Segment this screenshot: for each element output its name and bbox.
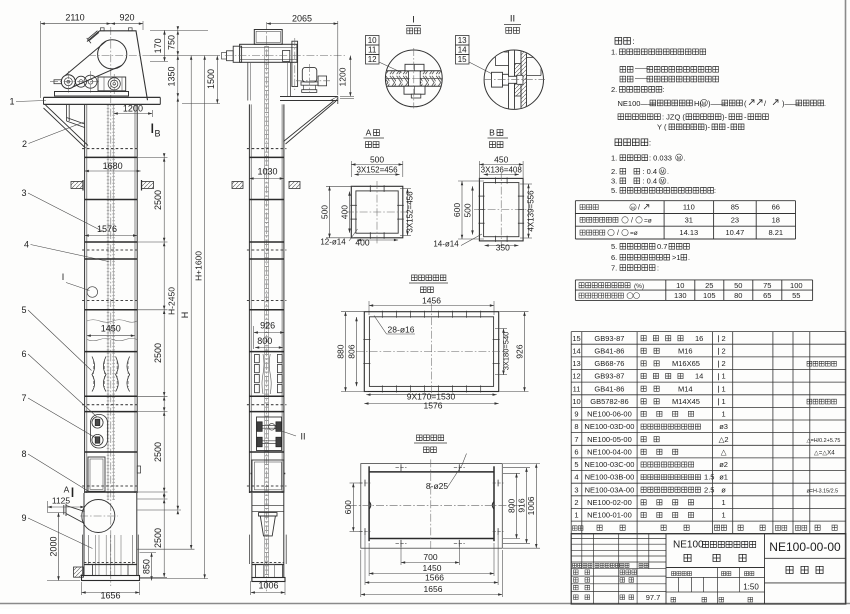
svg-text:18: 18 [772, 215, 780, 224]
svg-text:1: 1 [722, 511, 726, 520]
svg-text:7.: 7. [611, 263, 617, 272]
svg-text:I: I [62, 272, 65, 282]
svg-text:10: 10 [676, 281, 684, 290]
svg-text:/: / [638, 205, 640, 212]
svg-text::: : [663, 87, 665, 94]
svg-text:NE100-00-00: NE100-00-00 [769, 540, 841, 554]
svg-text:850: 850 [141, 559, 151, 574]
svg-text:/: / [617, 230, 619, 237]
svg-text:: 0.4: : 0.4 [643, 167, 658, 176]
svg-text:.: . [688, 255, 690, 262]
svg-text:II: II [301, 432, 306, 442]
svg-text:600: 600 [343, 500, 353, 514]
svg-text:6: 6 [574, 447, 578, 456]
svg-text:12-ø14: 12-ø14 [320, 238, 346, 247]
svg-text::: : [714, 188, 716, 195]
svg-text:1030: 1030 [257, 167, 277, 177]
svg-text:11: 11 [368, 46, 377, 55]
svg-text:1: 1 [722, 498, 726, 507]
svg-text:GB93-87: GB93-87 [594, 372, 624, 381]
svg-text:1: 1 [9, 97, 14, 107]
svg-text:100: 100 [790, 281, 803, 290]
svg-text:)-: )- [722, 113, 727, 122]
svg-text:600: 600 [452, 203, 462, 217]
svg-text:Y (: Y ( [657, 123, 667, 132]
svg-text:6.: 6. [611, 253, 617, 262]
svg-text:2065: 2065 [292, 13, 312, 23]
svg-text:916: 916 [516, 498, 526, 512]
svg-text:B: B [154, 129, 160, 139]
svg-text:: 0.4: : 0.4 [643, 177, 658, 186]
svg-text:M: M [631, 205, 635, 210]
svg-text:1576: 1576 [97, 224, 117, 234]
svg-text:920: 920 [119, 13, 134, 23]
svg-text:2500: 2500 [153, 190, 163, 210]
svg-text:1200: 1200 [123, 103, 143, 113]
svg-text:5: 5 [21, 305, 26, 315]
svg-text:GB93-87: GB93-87 [594, 334, 624, 343]
svg-text:65: 65 [763, 291, 771, 300]
svg-text:.: . [667, 179, 669, 186]
svg-text:2: 2 [722, 359, 726, 368]
svg-text:A: A [366, 128, 372, 138]
svg-text:500: 500 [370, 154, 384, 164]
svg-text:1:50: 1:50 [743, 583, 759, 592]
svg-text:2500: 2500 [153, 343, 163, 363]
svg-text:1500: 1500 [206, 69, 216, 89]
svg-text:II: II [510, 14, 515, 25]
svg-text:.: . [824, 101, 826, 108]
svg-text:8: 8 [574, 422, 578, 431]
svg-text:)-: )- [705, 123, 710, 132]
svg-text:3X152=456: 3X152=456 [356, 165, 398, 174]
svg-text:1.: 1. [611, 154, 617, 163]
svg-text:14: 14 [458, 46, 467, 55]
svg-text:△=△X4: △=△X4 [814, 449, 835, 456]
svg-text:3.: 3. [611, 177, 617, 186]
svg-text:80: 80 [734, 291, 742, 300]
svg-text:NE100-01-00: NE100-01-00 [587, 511, 632, 520]
svg-text:800: 800 [506, 499, 516, 513]
svg-text:3X152=456: 3X152=456 [406, 191, 415, 233]
svg-text::: : [649, 139, 651, 148]
svg-text:31: 31 [685, 215, 693, 224]
svg-text:9: 9 [21, 513, 26, 523]
svg-text:1: 1 [722, 397, 726, 406]
svg-text:1450: 1450 [101, 324, 121, 334]
svg-text:M: M [660, 179, 664, 185]
svg-text:.: . [667, 169, 669, 176]
svg-text:1656: 1656 [100, 591, 120, 601]
svg-text:9: 9 [574, 410, 578, 419]
svg-text:M: M [677, 156, 681, 162]
svg-text:GB5782-86: GB5782-86 [590, 397, 628, 406]
svg-text:806: 806 [346, 344, 356, 358]
svg-text:△2: △2 [719, 435, 729, 444]
svg-text:(%): (%) [634, 283, 644, 290]
svg-text:H-2450: H-2450 [167, 287, 177, 315]
svg-text:170: 170 [153, 38, 163, 53]
svg-text:2: 2 [722, 346, 726, 355]
svg-text:0.7: 0.7 [657, 242, 667, 251]
svg-text:130: 130 [674, 291, 687, 300]
svg-text:97.7: 97.7 [646, 593, 661, 602]
svg-text:6: 6 [21, 349, 26, 359]
svg-text:M14X45: M14X45 [672, 397, 700, 406]
svg-text:400: 400 [339, 205, 349, 219]
svg-text:11: 11 [573, 384, 581, 393]
svg-text:50: 50 [734, 281, 742, 290]
svg-text:23: 23 [731, 215, 739, 224]
svg-text:1: 1 [722, 384, 726, 393]
svg-text:2.: 2. [611, 167, 617, 176]
svg-text:M: M [660, 170, 664, 176]
svg-text:2000: 2000 [48, 537, 58, 557]
svg-text:: 0.033: : 0.033 [649, 154, 672, 163]
svg-text:NE100: NE100 [673, 540, 704, 551]
svg-text:3X136=408: 3X136=408 [481, 165, 523, 174]
svg-text:GB41-86: GB41-86 [594, 384, 624, 393]
svg-text:1.: 1. [611, 48, 617, 57]
svg-text:10: 10 [572, 397, 580, 406]
svg-text:500: 500 [319, 205, 329, 219]
svg-text:1006: 1006 [526, 496, 536, 515]
svg-text:1125: 1125 [52, 496, 71, 506]
svg-text:NE100-03D-00: NE100-03D-00 [584, 422, 634, 431]
svg-text:NE100-02-00: NE100-02-00 [587, 498, 632, 507]
svg-text:450: 450 [494, 154, 508, 164]
svg-text:3: 3 [574, 485, 578, 494]
svg-text:1680: 1680 [103, 161, 123, 171]
svg-text::: : [657, 265, 659, 272]
svg-text:14.13: 14.13 [679, 228, 698, 237]
svg-text:1: 1 [722, 410, 726, 419]
svg-text:400: 400 [355, 238, 369, 248]
svg-text:4: 4 [24, 240, 29, 250]
svg-text:2500: 2500 [153, 528, 163, 548]
svg-text:10: 10 [368, 36, 377, 45]
svg-text:800: 800 [257, 336, 272, 346]
svg-text:1566: 1566 [425, 573, 444, 583]
svg-text:500: 500 [462, 203, 472, 217]
svg-text:H+1600: H+1600 [194, 251, 204, 281]
svg-text:2500: 2500 [153, 442, 163, 462]
svg-text:700: 700 [423, 552, 437, 562]
svg-text::: : [632, 37, 634, 46]
svg-text:H: H [180, 312, 190, 319]
svg-text:=ø: =ø [644, 217, 652, 224]
svg-text:8: 8 [21, 449, 26, 459]
svg-text:5.: 5. [611, 186, 617, 195]
svg-text:4X139=556: 4X139=556 [527, 190, 536, 232]
svg-text:85: 85 [731, 203, 739, 212]
svg-text:M16: M16 [678, 346, 693, 355]
svg-text:4: 4 [574, 473, 578, 482]
svg-text:926: 926 [514, 344, 524, 358]
svg-text:>1: >1 [672, 253, 681, 262]
svg-text:1656: 1656 [424, 584, 443, 594]
svg-text:14: 14 [695, 372, 703, 381]
svg-text:350: 350 [496, 243, 510, 253]
svg-text:2.: 2. [611, 85, 617, 94]
svg-text:ø: ø [721, 485, 726, 494]
svg-text:2: 2 [722, 334, 726, 343]
svg-text:25: 25 [705, 281, 713, 290]
svg-text:7: 7 [574, 435, 578, 444]
svg-text:GB68-76: GB68-76 [594, 359, 624, 368]
svg-text:2: 2 [574, 498, 578, 507]
svg-text:926: 926 [260, 321, 275, 331]
svg-text:ø3: ø3 [719, 422, 728, 431]
svg-text:1450: 1450 [423, 563, 442, 573]
svg-text:880: 880 [335, 344, 345, 358]
svg-text:8.21: 8.21 [768, 228, 783, 237]
svg-text:.: . [684, 156, 686, 163]
svg-text:2110: 2110 [65, 13, 84, 23]
svg-text:I: I [412, 15, 415, 26]
svg-text:10.47: 10.47 [726, 228, 745, 237]
svg-text:M16X65: M16X65 [672, 359, 700, 368]
svg-text:14-ø14: 14-ø14 [433, 240, 459, 249]
svg-text:16: 16 [695, 334, 703, 343]
svg-text:12: 12 [368, 55, 377, 64]
svg-text:NE100-05-00: NE100-05-00 [587, 435, 632, 444]
svg-text:NE100-04-00: NE100-04-00 [587, 447, 632, 456]
svg-text:13: 13 [572, 359, 580, 368]
svg-text:M14: M14 [678, 384, 693, 393]
svg-text:66: 66 [772, 203, 780, 212]
svg-text:2: 2 [22, 139, 27, 149]
svg-text:NE100-06-00: NE100-06-00 [587, 410, 632, 419]
svg-text:2.5: 2.5 [704, 485, 714, 494]
svg-text:NE100-03A-00: NE100-03A-00 [585, 485, 635, 494]
svg-text:1: 1 [574, 511, 578, 520]
svg-text:1350: 1350 [167, 66, 177, 86]
svg-text:1456: 1456 [422, 295, 441, 305]
svg-text:15: 15 [458, 55, 467, 64]
svg-text:/: / [631, 217, 633, 224]
svg-text:NE100-03B-00: NE100-03B-00 [585, 473, 635, 482]
svg-text:8-ø25: 8-ø25 [426, 481, 448, 491]
svg-text:1576: 1576 [424, 400, 443, 410]
svg-text:M: M [702, 101, 706, 107]
svg-text:△=H/0.2+5.75: △=H/0.2+5.75 [807, 438, 841, 444]
svg-text:3: 3 [21, 188, 26, 198]
svg-text:13: 13 [458, 36, 467, 45]
svg-text:: JZQ (: : JZQ ( [662, 113, 685, 122]
svg-text:GB41-86: GB41-86 [594, 346, 624, 355]
svg-text:15: 15 [572, 334, 580, 343]
svg-text:55: 55 [792, 291, 800, 300]
svg-text:750: 750 [167, 35, 177, 50]
svg-text:7: 7 [21, 393, 26, 403]
svg-text:=ø: =ø [630, 230, 638, 237]
svg-text:NE100-03C-00: NE100-03C-00 [584, 460, 634, 469]
svg-text:1006: 1006 [258, 581, 278, 591]
svg-text:28-ø16: 28-ø16 [388, 325, 415, 335]
svg-text:B: B [489, 128, 495, 138]
svg-text:ø2: ø2 [719, 460, 728, 469]
svg-text:ø=H-3.15/2.5: ø=H-3.15/2.5 [807, 488, 839, 494]
svg-text:5: 5 [574, 460, 578, 469]
svg-text:14: 14 [572, 346, 580, 355]
svg-text:110: 110 [683, 203, 695, 212]
svg-text:1: 1 [722, 372, 726, 381]
svg-text:12: 12 [572, 372, 580, 381]
svg-text:105: 105 [703, 291, 716, 300]
svg-text:A: A [64, 485, 70, 495]
svg-text:5.: 5. [611, 242, 617, 251]
svg-text:ø1: ø1 [719, 473, 728, 482]
svg-text:1.5: 1.5 [704, 473, 714, 482]
svg-text:3X180=540: 3X180=540 [502, 332, 511, 371]
svg-text:1200: 1200 [338, 67, 348, 86]
svg-text:75: 75 [763, 281, 771, 290]
